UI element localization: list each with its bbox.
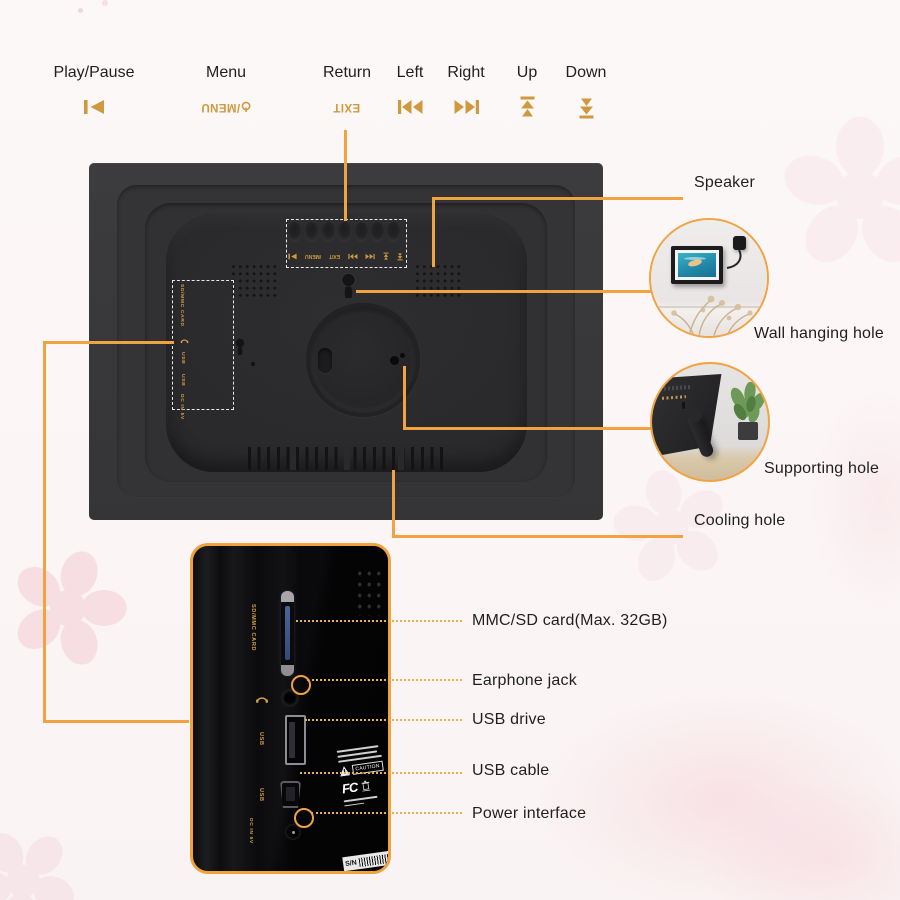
control-label: Menu <box>166 64 286 82</box>
speaker-grille-left <box>230 263 278 299</box>
up-print-icon <box>383 252 389 261</box>
power-icon <box>241 102 251 113</box>
callout-earphone <box>307 679 462 681</box>
speaker-label: Speaker <box>694 174 755 192</box>
frame-inner-bezel: /MENU EXIT <box>145 203 547 482</box>
callout-line-support <box>403 427 653 430</box>
callout-mmc <box>296 620 462 622</box>
usb-a-side-label: USB <box>259 732 265 746</box>
mini-usb-side-label: USB <box>259 788 265 802</box>
button-print-row: /MENU EXIT <box>286 250 405 262</box>
usb-a-port[interactable] <box>285 715 306 765</box>
callout-line-wall <box>356 290 651 293</box>
keyhole-detail <box>682 402 685 409</box>
flower-decoration <box>0 532 144 683</box>
hanging-frame <box>671 246 723 284</box>
usb-cable-label: USB cable <box>472 762 549 780</box>
serial-text: S/N <box>345 859 358 868</box>
weee-bin-icon <box>361 780 370 792</box>
dc-pin <box>292 831 295 834</box>
sd-card-slot[interactable] <box>281 591 294 676</box>
control-label: Down <box>526 64 646 82</box>
usb-print: USB <box>181 352 187 364</box>
dc-print: DC IN 5V <box>180 394 186 420</box>
usb-print: USB <box>181 374 187 386</box>
stand-photo <box>650 362 770 482</box>
callout-line-cooling <box>392 535 683 538</box>
callout-power <box>311 812 462 814</box>
frame-bezel: /MENU EXIT <box>117 185 575 498</box>
pink-dot <box>78 8 83 13</box>
callout-line-speaker <box>432 197 683 200</box>
cooling-holes <box>248 447 448 470</box>
regulatory-label: CAUTION FC <box>336 741 391 820</box>
wall-hanging-label: Wall hanging hole <box>754 325 884 343</box>
callout-line-buttons <box>344 130 347 221</box>
barcode <box>358 853 389 866</box>
pink-wash <box>810 390 900 610</box>
mmc-label: MMC/SD card(Max. 32GB) <box>472 612 668 630</box>
callout-line-cooling <box>392 470 395 537</box>
frame-back-face: /MENU EXIT <box>166 214 527 472</box>
sd-card-edge <box>285 606 290 660</box>
supporting-hole-small <box>400 353 405 358</box>
dc-side-label: DC IN 5V <box>249 818 255 844</box>
control-menu: Menu /MENU <box>166 64 286 119</box>
exit-print: EXIT <box>329 253 340 259</box>
sd-card-print: SD/MMC CARD <box>180 284 186 327</box>
callout-line-support <box>403 366 406 429</box>
callout-line-sideports <box>43 341 174 344</box>
small-keyhole <box>234 338 246 358</box>
skip-back-print-icon <box>348 253 358 260</box>
speaker-dots <box>355 568 383 616</box>
down-to-bar-icon <box>526 95 646 119</box>
control-play-pause: Play/Pause <box>34 64 154 119</box>
menu-icon: /MENU <box>166 95 286 119</box>
cooling-label: Cooling hole <box>694 512 785 530</box>
mini-usb-port[interactable] <box>280 781 301 808</box>
back-button[interactable] <box>371 222 384 241</box>
callout-line-speaker <box>432 197 435 267</box>
fcc-logo: FC <box>341 780 358 797</box>
photo <box>678 253 716 277</box>
stand-hinge <box>688 408 702 422</box>
usb-drive-label: USB drive <box>472 711 546 729</box>
supporting-hole <box>390 356 399 365</box>
supporting-label: Supporting hole <box>764 460 879 478</box>
earphone-ring-marker <box>291 675 311 695</box>
wall-mount-photo <box>649 218 769 338</box>
stand-latch <box>318 348 332 373</box>
back-button[interactable] <box>387 222 400 241</box>
speaker-grille-right <box>414 263 462 299</box>
back-button[interactable] <box>322 222 335 241</box>
plant <box>724 382 768 452</box>
product-infographic: Play/Pause Menu /MENU Return EXIT Left R… <box>0 0 900 900</box>
mini-usb-pin <box>286 787 295 801</box>
down-print-icon <box>397 252 403 261</box>
headphone-print-icon <box>180 336 189 344</box>
side-ports-closeup: SD/MMC CARD USB USB DC IN 5V CAUTION <box>190 543 391 874</box>
callout-line-sideports <box>43 720 189 723</box>
back-button[interactable] <box>355 222 368 241</box>
skip-forward-print-icon <box>365 253 375 260</box>
callout-line-sideports <box>43 341 46 723</box>
wall-hanging-hole <box>340 272 357 302</box>
usb-tongue <box>289 722 295 758</box>
flower-decoration <box>780 115 900 275</box>
play-pause-print-icon <box>288 253 297 260</box>
control-label: Play/Pause <box>34 64 154 82</box>
headphone-icon <box>255 692 269 704</box>
power-label: Power interface <box>472 805 586 823</box>
callout-usb-cable <box>300 772 462 774</box>
menu-print: /MENU <box>305 253 321 259</box>
sd-card-side-label: SD/MMC CARD <box>251 604 257 651</box>
back-button[interactable] <box>338 222 351 241</box>
flower-decoration <box>0 804 100 900</box>
power-cable <box>717 248 747 278</box>
dried-flowers <box>659 280 764 336</box>
screw-hole <box>251 362 255 366</box>
power-ring-marker <box>294 808 314 828</box>
callout-usb-drive <box>305 719 462 721</box>
pink-dot <box>102 0 108 6</box>
earphone-label: Earphone jack <box>472 672 577 690</box>
back-button[interactable] <box>305 222 318 241</box>
control-down: Down <box>526 64 646 119</box>
back-button[interactable] <box>288 222 301 241</box>
play-pause-icon <box>34 95 154 119</box>
